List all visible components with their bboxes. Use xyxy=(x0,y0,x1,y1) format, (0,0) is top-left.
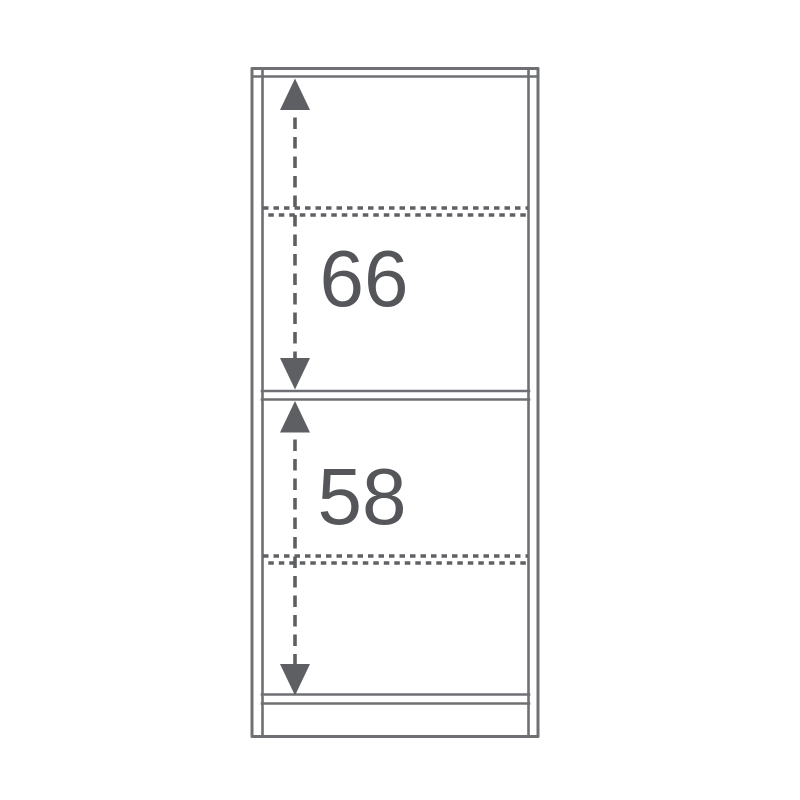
lower-dimension-label: 58 xyxy=(318,452,407,541)
upper-dimension-arrowhead-up-icon xyxy=(280,79,310,111)
diagram-canvas: 66 58 xyxy=(0,0,800,800)
lower-dimension: 58 xyxy=(280,401,406,696)
upper-dimension-arrowhead-down-icon xyxy=(280,358,310,390)
cabinet-dimension-drawing: 66 58 xyxy=(0,0,800,800)
upper-dimension-label: 66 xyxy=(320,234,409,323)
upper-dimension: 66 xyxy=(280,79,408,390)
lower-dimension-arrowhead-down-icon xyxy=(280,664,310,696)
lower-dimension-arrowhead-up-icon xyxy=(280,401,310,433)
